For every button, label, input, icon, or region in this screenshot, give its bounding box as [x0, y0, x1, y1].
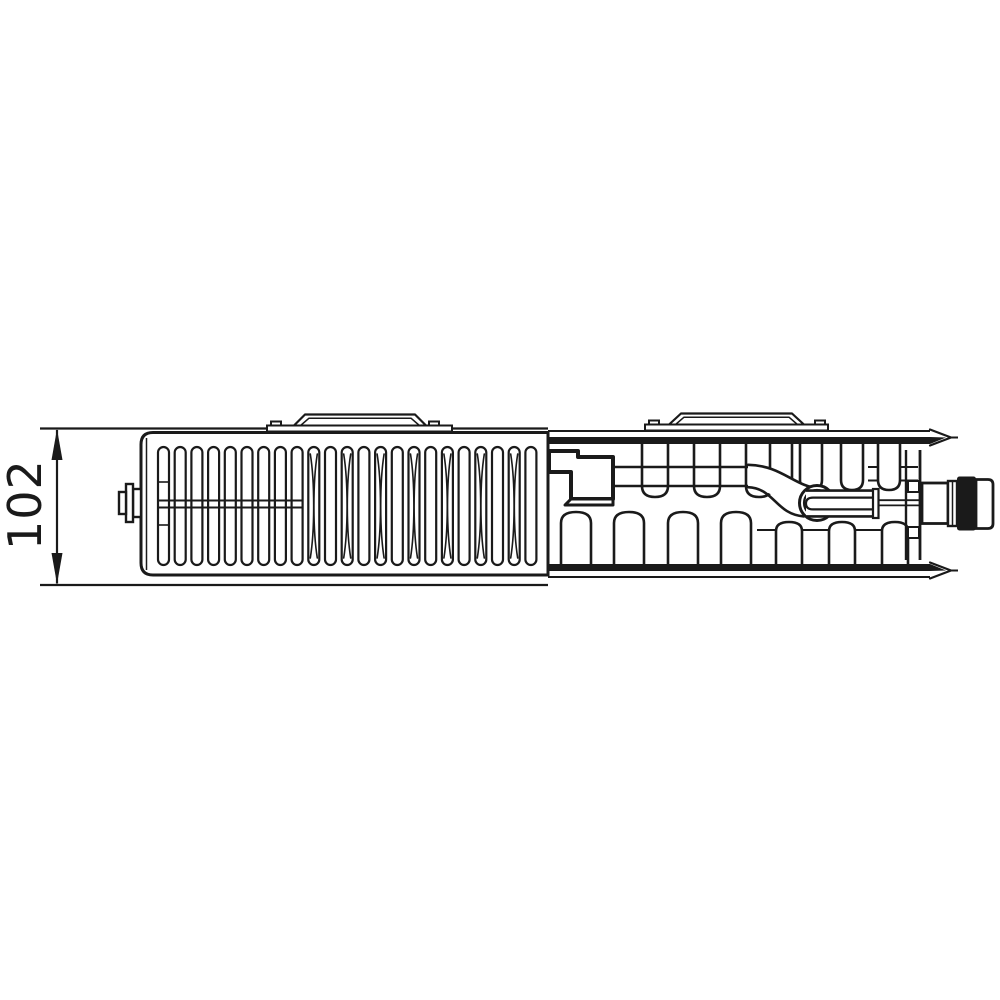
valve-body-block — [922, 483, 948, 524]
mounting-bracket-left — [267, 415, 452, 432]
water-channel — [882, 522, 908, 564]
convector-fin — [425, 447, 436, 565]
panel-connection-duct-foot — [565, 499, 613, 505]
water-channel — [721, 512, 751, 564]
valve-knurled-ring — [957, 477, 976, 531]
convector-fin — [258, 447, 269, 565]
bracket-tab — [649, 421, 659, 425]
panel-connection-duct — [549, 451, 613, 499]
radiator-front-section — [119, 415, 548, 576]
rear-lower-water-channels — [561, 512, 908, 564]
water-channel — [561, 512, 591, 564]
bracket-tab — [271, 422, 281, 426]
end-plate-detail — [908, 481, 919, 492]
bracket-bar — [645, 425, 828, 431]
convector-fin — [459, 447, 470, 565]
dimension-label: 102 — [0, 459, 52, 550]
convector-fin — [325, 447, 336, 565]
drawing-canvas: 102 — [0, 0, 1000, 1000]
radiator-rear-section — [548, 414, 993, 579]
convector-fin — [225, 447, 236, 565]
valve-protection-cap — [976, 480, 993, 529]
water-channel — [642, 444, 668, 497]
rear-bottom-panel-band — [548, 564, 930, 571]
end-plate-detail — [908, 527, 919, 538]
convector-fin — [175, 447, 186, 565]
dimension-arrow-down — [52, 553, 63, 584]
water-channel — [694, 444, 720, 497]
convector-fin — [525, 447, 536, 565]
bracket-tab — [815, 421, 825, 425]
convector-fin — [358, 447, 369, 565]
convector-fin — [492, 447, 503, 565]
end-plug — [119, 484, 141, 522]
convector-fin — [275, 447, 286, 565]
water-channel — [776, 522, 802, 564]
rear-top-panel-band — [548, 437, 930, 444]
valve-pipe-fill — [806, 492, 874, 516]
radiator-technical-drawing: 102 — [0, 0, 1000, 1000]
water-channel — [614, 512, 644, 564]
convector-fin — [292, 447, 303, 565]
water-channel — [668, 512, 698, 564]
convector-fin — [158, 447, 169, 565]
mounting-bracket-right — [645, 414, 828, 431]
dimension-annotation: 102 — [0, 429, 63, 584]
convector-fin — [242, 447, 253, 565]
dimension-arrow-up — [52, 429, 63, 460]
bracket-bar — [267, 426, 452, 432]
water-channel — [841, 444, 863, 490]
convector-fin — [392, 447, 403, 565]
convector-fin — [208, 447, 219, 565]
water-channel — [829, 522, 855, 564]
plug-body — [119, 492, 126, 514]
valve-pipe — [806, 489, 920, 518]
bracket-tab — [429, 422, 439, 426]
convector-fin — [191, 447, 202, 565]
valve-body-assembly — [922, 477, 993, 531]
water-channel — [878, 444, 900, 490]
valve-pipe-flange — [873, 489, 879, 518]
